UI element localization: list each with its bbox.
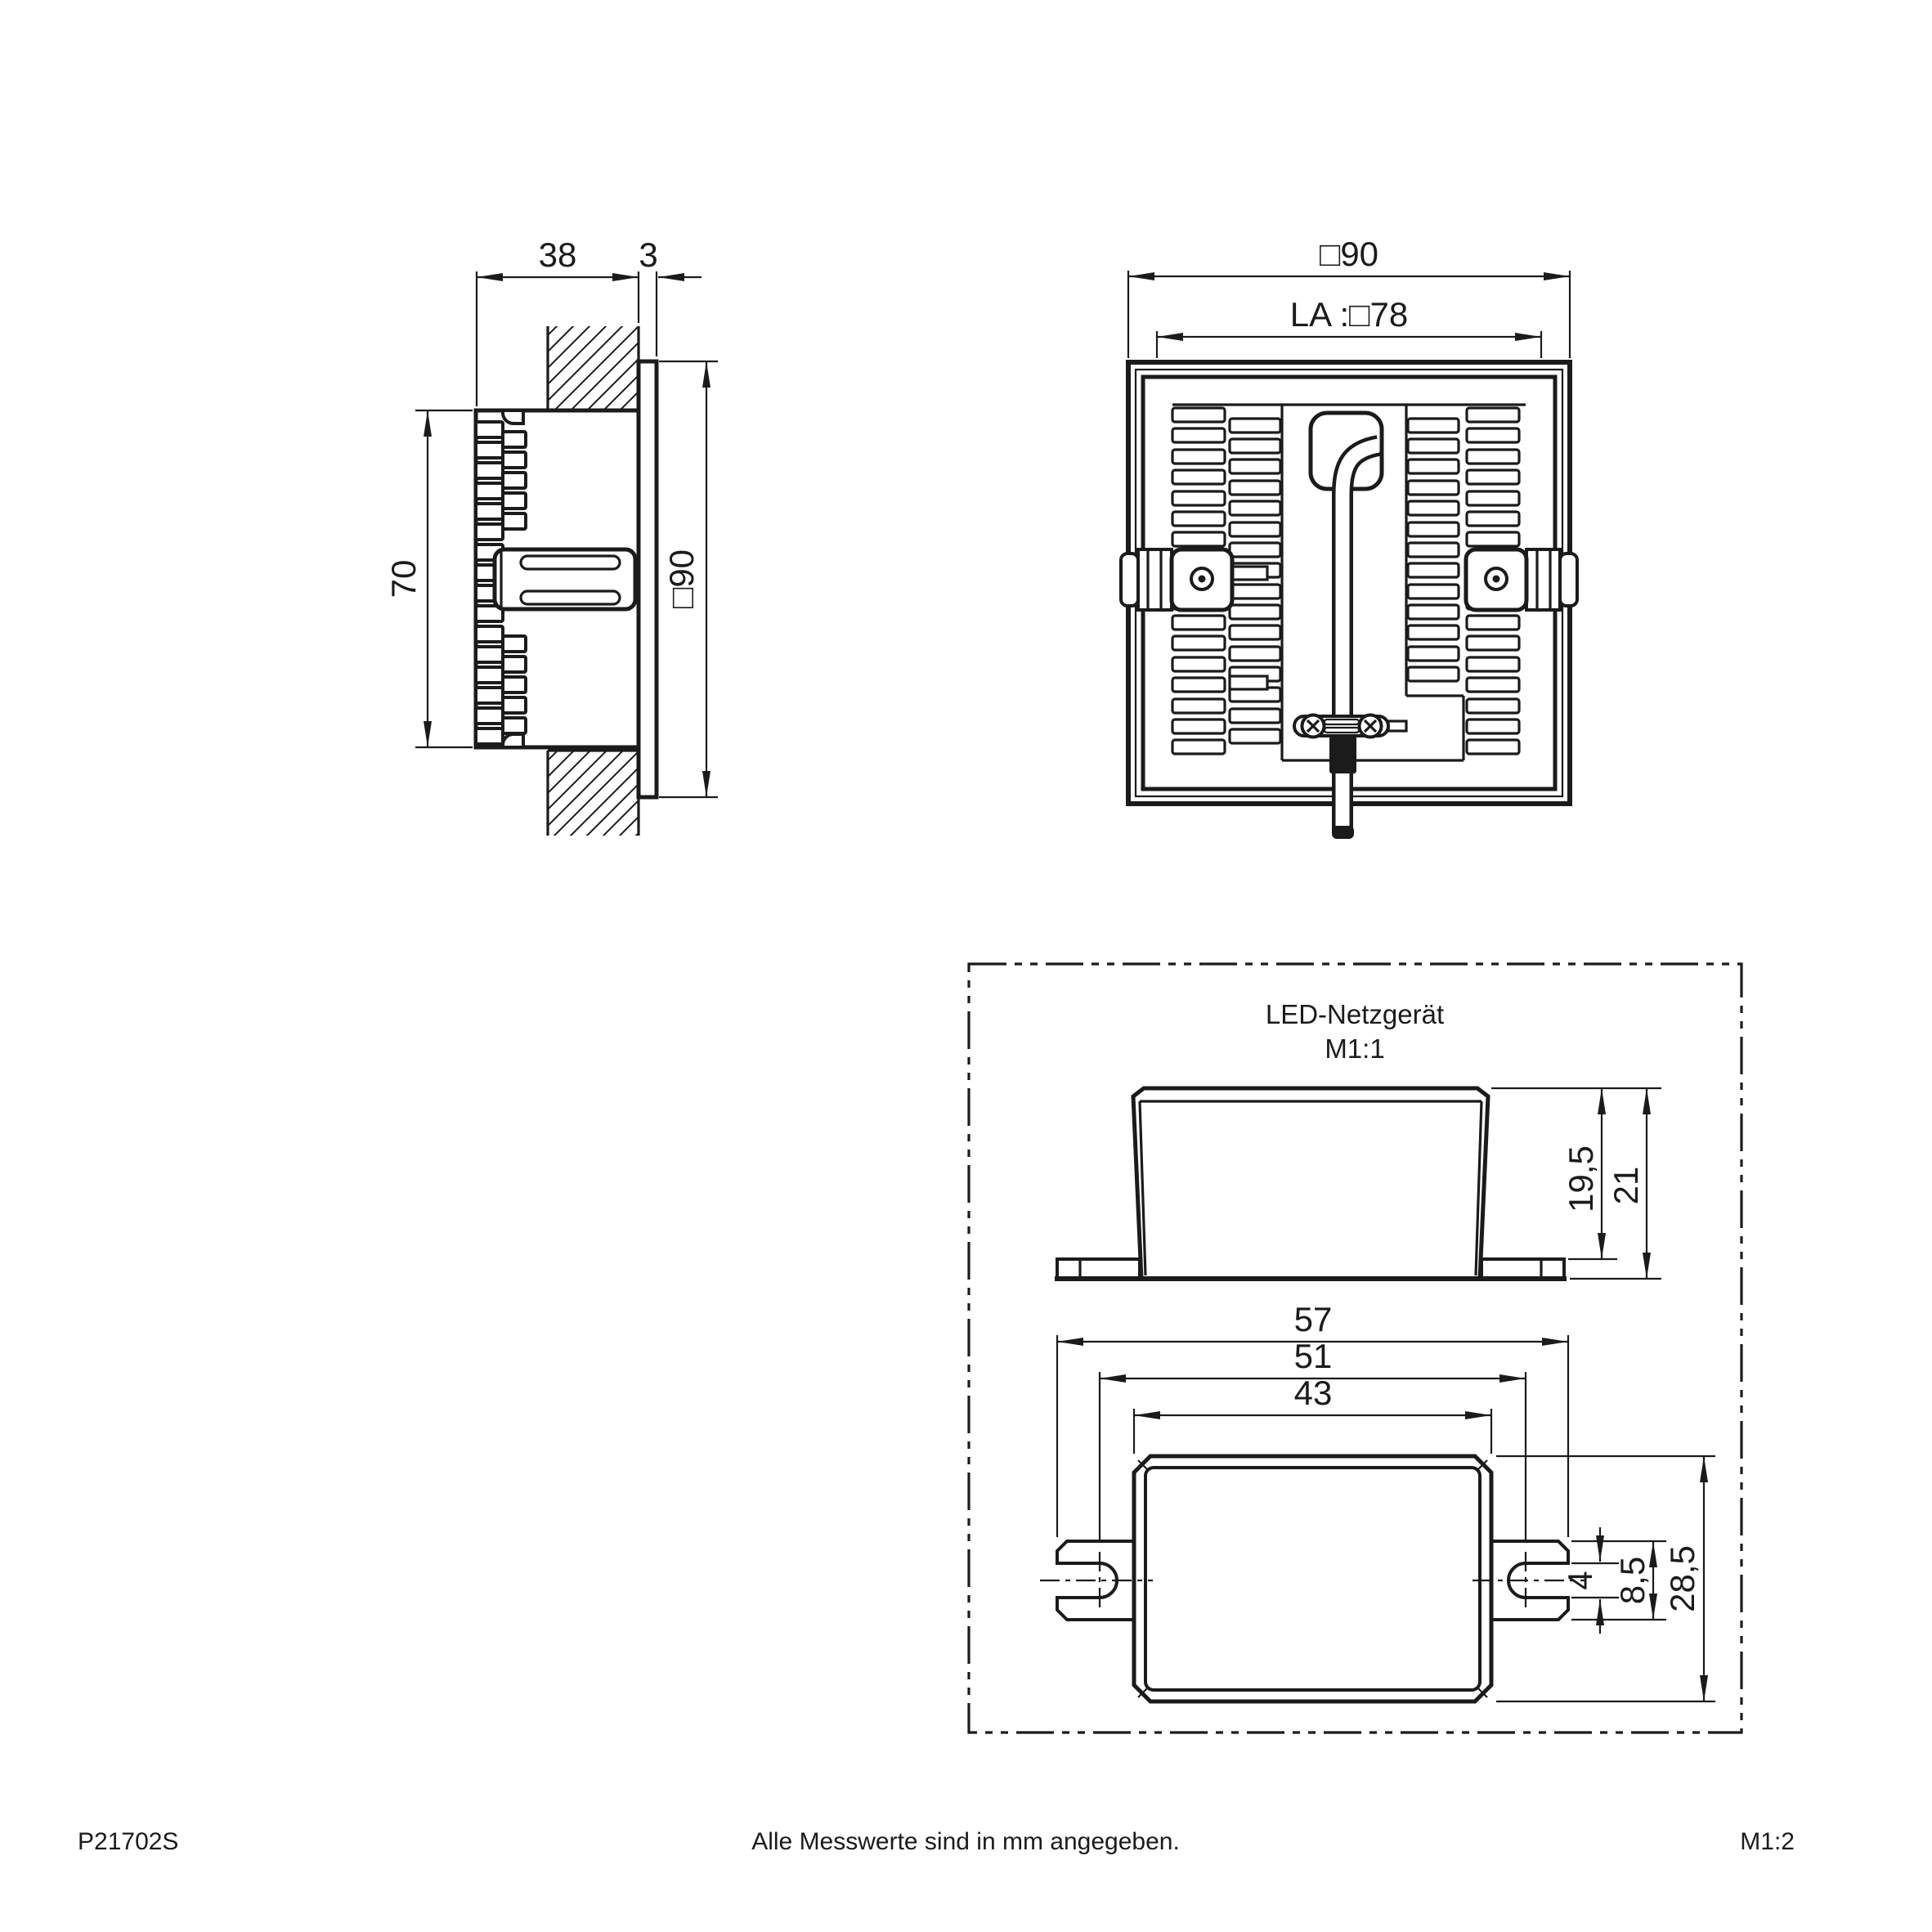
fin-notch-bottom (503, 734, 523, 747)
dim-psu-total-width: 57 (1294, 1300, 1333, 1338)
dim-psu-tab-height: 8,5 (1613, 1557, 1652, 1604)
rear-view-dimensions: □90 LA :□78 (1128, 235, 1570, 358)
psu-side-dimensions: 19,5 21 (1491, 1088, 1661, 1279)
psu-flange-left (1057, 1259, 1140, 1279)
sheet-scale: M1:2 (1740, 1828, 1795, 1855)
bezel-plate (639, 361, 657, 797)
units-note: Alle Messwerte sind in mm angegeben. (751, 1828, 1180, 1855)
clamp-screw-right (1360, 715, 1382, 737)
psu-title: LED-Netzgerät (1266, 999, 1444, 1029)
rear-view: □90 LA :□78 (1121, 235, 1577, 839)
drawing-sheet: 38 3 70 □90 (0, 0, 1932, 1932)
cable-sheath-collar (1329, 736, 1356, 773)
dim-psu-slot-distance: 51 (1294, 1337, 1333, 1375)
cable-tip (1332, 826, 1354, 839)
psu-flange-right (1481, 1259, 1564, 1279)
clamp-screw-left (1302, 715, 1325, 737)
technical-drawing: 38 3 70 □90 (0, 0, 1932, 1932)
fin-key-notch (1230, 567, 1267, 580)
psu-detail-panel: LED-Netzgerät M1:1 19,5 21 57 (969, 964, 1741, 1733)
footer: P21702S Alle Messwerte sind in mm angege… (78, 1828, 1795, 1855)
dim-outer-label: □90 (1320, 235, 1378, 273)
dim-depth-label: 38 (539, 235, 577, 274)
psu-body-top (1134, 1456, 1491, 1701)
dim-psu-body-depth: 28,5 (1663, 1545, 1701, 1612)
psu-top-dimensions-right: 4 8,5 28,5 (1496, 1456, 1715, 1701)
dim-bezel-label: 3 (639, 235, 657, 274)
psu-top-view: 57 51 43 4 8,5 28,5 (1040, 1300, 1715, 1701)
dim-cutout-label: LA :□78 (1290, 295, 1408, 334)
dim-face-label: □90 (662, 549, 701, 608)
psu-body-side (1133, 1088, 1488, 1279)
psu-scale: M1:1 (1325, 1033, 1384, 1064)
fin-key-notch (1230, 676, 1267, 689)
dim-psu-total-height: 21 (1607, 1167, 1645, 1205)
dim-psu-body-height: 19,5 (1562, 1145, 1600, 1213)
fin-notch-top (503, 410, 523, 424)
psu-side-view: 19,5 21 (1055, 1088, 1661, 1279)
dim-height-label: 70 (384, 560, 423, 598)
wall-hatch-upper (548, 326, 639, 410)
wall-hatch-lower (548, 751, 639, 836)
dim-psu-body-width: 43 (1294, 1374, 1333, 1412)
side-section-view: 38 3 70 □90 (384, 235, 718, 836)
retaining-clip-left (1121, 549, 1232, 610)
retaining-clip-right (1466, 549, 1577, 610)
spring-clip-side (495, 549, 635, 609)
part-number: P21702S (78, 1828, 178, 1855)
dim-psu-slot-width: 4 (1561, 1571, 1599, 1589)
